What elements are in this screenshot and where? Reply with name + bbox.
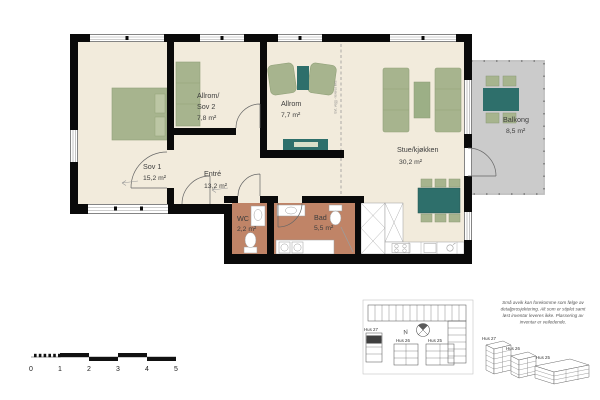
window bbox=[278, 35, 322, 42]
label-allrom-sov2-area: 7,8 m² bbox=[197, 115, 217, 122]
window bbox=[90, 35, 164, 42]
label-balkong: Balkong bbox=[503, 115, 529, 124]
floor-plan-svg: Evt. vegg - leveres ikke Sov 1 15,2 m² A… bbox=[0, 0, 600, 400]
bad-toilet bbox=[329, 205, 342, 225]
label-allrom: Allrom bbox=[281, 99, 301, 108]
armchair bbox=[267, 62, 297, 95]
axonometric-view: Hus 27 Hus 26 Hus 25 bbox=[482, 336, 589, 384]
axon-hus25 bbox=[535, 359, 589, 384]
label-bad-area: 5,5 m² bbox=[314, 225, 334, 232]
pillow bbox=[155, 117, 165, 136]
site-plan: N Hus 27 Hus 26 Hus 25 bbox=[363, 300, 473, 374]
label-sov1-area: 15,2 m² bbox=[143, 175, 167, 182]
wc-sink bbox=[251, 206, 265, 226]
washer-counter bbox=[276, 240, 334, 254]
scale-bar: 0 1 2 3 4 5 bbox=[29, 353, 178, 373]
label-balkong-area: 8,5 m² bbox=[506, 128, 526, 135]
window bbox=[465, 80, 472, 134]
wall-allrom2-allrom bbox=[260, 42, 267, 158]
window bbox=[200, 35, 244, 42]
label-wc: WC bbox=[237, 214, 249, 223]
disclaimer-line1: Små avvik kan forekomme som følge av bbox=[502, 299, 584, 305]
wall-sov1-entre-b bbox=[167, 188, 174, 204]
label-stue: Stue/kjøkken bbox=[397, 145, 439, 154]
scale-1: 1 bbox=[58, 366, 62, 373]
window bbox=[465, 212, 472, 240]
label-wc-area: 2,2 m² bbox=[237, 226, 257, 233]
dining-table bbox=[418, 188, 460, 213]
label-allrom-sov2-1: Allrom/ bbox=[197, 91, 219, 100]
disclaimer-line4: inventar er veiledende. bbox=[520, 320, 566, 325]
label-entre-area: 13,2 m² bbox=[204, 183, 228, 190]
axon-label-hus25: Hus 25 bbox=[536, 355, 550, 360]
floor-plan-page: Evt. vegg - leveres ikke Sov 1 15,2 m² A… bbox=[0, 0, 600, 400]
wall-bad-shaft bbox=[355, 196, 361, 264]
wc-toilet bbox=[244, 233, 257, 254]
wall-bottom-right bbox=[224, 254, 472, 264]
window bbox=[71, 130, 78, 162]
wall-allrom-bottom bbox=[260, 150, 344, 158]
disclaimer: Små avvik kan forekomme som følge av det… bbox=[501, 299, 587, 325]
tv-bench bbox=[283, 139, 328, 150]
axon-label-hus27: Hus 27 bbox=[482, 336, 496, 341]
disclaimer-line2: detaljprosjektering. Alt som er stiplet … bbox=[501, 307, 587, 312]
wall-allrom2-entre bbox=[167, 128, 236, 135]
wall-wcbad-top-a bbox=[224, 196, 238, 203]
site-label-hus26: Hus 26 bbox=[396, 338, 410, 343]
wall-left bbox=[70, 34, 78, 214]
sofa bbox=[383, 68, 409, 132]
axon-hus26 bbox=[511, 352, 536, 378]
balcony-table bbox=[483, 88, 519, 111]
shaft-hatched bbox=[361, 203, 385, 254]
site-label-hus25: Hus 25 bbox=[428, 338, 442, 343]
coffee-table bbox=[414, 82, 430, 118]
label-bad: Bad bbox=[314, 213, 327, 222]
scale-2: 2 bbox=[87, 366, 91, 373]
label-allrom-sov2-2: Sov 2 bbox=[197, 102, 215, 111]
bed bbox=[112, 88, 167, 140]
disclaimer-line3: løst inventar leveres ikke. Plassering a… bbox=[503, 313, 584, 318]
highlighted-unit bbox=[367, 336, 382, 344]
wall-wcbad-top-c bbox=[302, 196, 364, 203]
wall-wc-bad-divider bbox=[267, 196, 274, 264]
scale-5: 5 bbox=[174, 366, 178, 373]
label-sov1: Sov 1 bbox=[143, 162, 161, 171]
label-allrom-area: 7,7 m² bbox=[281, 112, 301, 119]
scale-4: 4 bbox=[145, 366, 149, 373]
pillow bbox=[155, 94, 165, 113]
scale-bar-dots bbox=[34, 354, 61, 357]
label-stue-area: 30,2 m² bbox=[399, 159, 423, 166]
side-table bbox=[297, 66, 309, 90]
scale-bar-segments bbox=[60, 353, 176, 361]
site-label-hus27: Hus 27 bbox=[364, 327, 378, 332]
label-entre: Entré bbox=[204, 169, 221, 178]
scale-0: 0 bbox=[29, 366, 33, 373]
window bbox=[88, 205, 168, 214]
dashed-wall-note: Evt. vegg - leveres ikke bbox=[334, 80, 338, 113]
armchair bbox=[307, 62, 337, 95]
balcony-door-opening bbox=[465, 148, 472, 176]
window bbox=[390, 35, 456, 42]
scale-3: 3 bbox=[116, 366, 120, 373]
axon-label-hus26: Hus 26 bbox=[506, 346, 520, 351]
sofa bbox=[435, 68, 461, 132]
